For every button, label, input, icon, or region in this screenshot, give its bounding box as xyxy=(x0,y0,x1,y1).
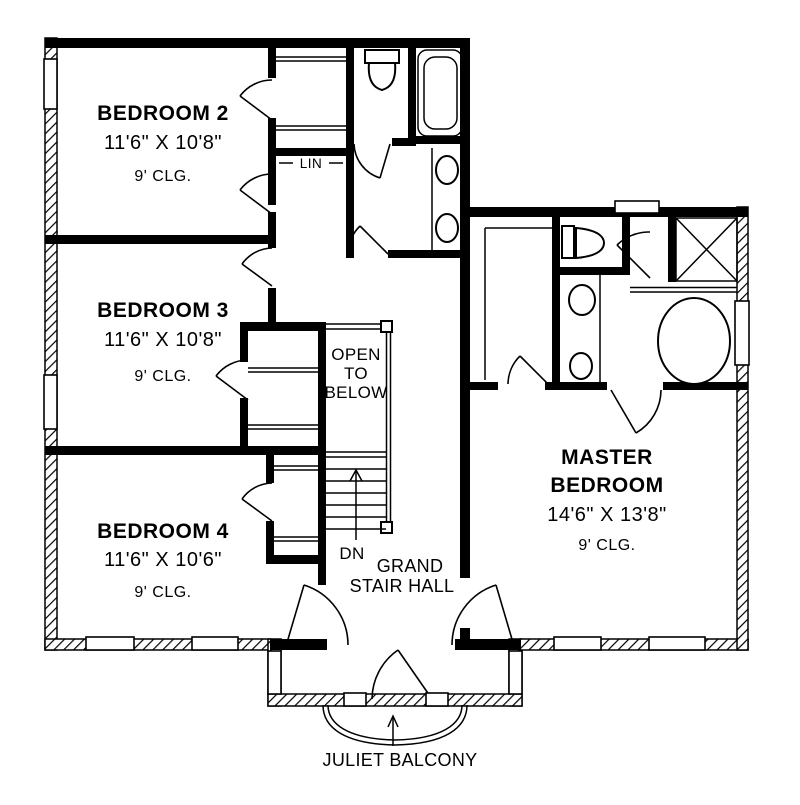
floor-plan-drawing: BEDROOM 2 11'6" X 10'8" 9' CLG. BEDROOM … xyxy=(0,0,800,805)
bedroom2-dims: 11'6" X 10'8" xyxy=(104,132,222,154)
linen-label: LIN xyxy=(300,156,323,171)
stair-hall-line2: STAIR HALL xyxy=(350,576,455,596)
stair-hall-line1: GRAND xyxy=(377,556,444,576)
open-to-below-line1: OPEN xyxy=(331,345,380,364)
window-bedroom4-1 xyxy=(86,637,134,650)
railing-post-bottom xyxy=(381,522,392,533)
bedroom4-dims: 11'6" X 10'6" xyxy=(104,549,222,571)
bedroom3-ceiling: 9' CLG. xyxy=(134,368,191,385)
master-dims: 14'6" X 13'8" xyxy=(547,504,667,526)
master-name-line2: BEDROOM xyxy=(550,474,663,497)
window-bedroom4-2 xyxy=(192,637,238,650)
window-master-right xyxy=(735,301,749,365)
master-name-line1: MASTER xyxy=(561,446,653,469)
bedroom4-ceiling: 9' CLG. xyxy=(134,584,191,601)
sidelight-right xyxy=(426,693,448,706)
window-master-top xyxy=(615,201,659,213)
window-master-bottom-2 xyxy=(649,637,705,650)
railing-post-top xyxy=(381,321,392,332)
floor-plan-page: BEDROOM 2 11'6" X 10'8" 9' CLG. BEDROOM … xyxy=(0,0,800,805)
window-master-bottom-1 xyxy=(554,637,601,650)
juliet-balcony-label: JULIET BALCONY xyxy=(323,750,478,770)
master-ceiling: 9' CLG. xyxy=(578,537,635,554)
open-to-below-line2: TO xyxy=(344,364,368,383)
window-bedroom3-left xyxy=(44,375,57,429)
down-label: DN xyxy=(339,544,364,563)
bedroom4-name: BEDROOM 4 xyxy=(97,520,229,543)
open-to-below-line3: BELOW xyxy=(325,383,388,402)
window-alcove-left xyxy=(268,651,281,694)
window-bedroom2-left xyxy=(44,59,57,109)
bedroom2-ceiling: 9' CLG. xyxy=(134,168,191,185)
sidelight-left xyxy=(344,693,366,706)
window-alcove-right xyxy=(509,651,522,694)
bedroom2-name: BEDROOM 2 xyxy=(97,102,229,125)
bedroom3-name: BEDROOM 3 xyxy=(97,299,229,322)
bedroom3-dims: 11'6" X 10'8" xyxy=(104,329,222,351)
